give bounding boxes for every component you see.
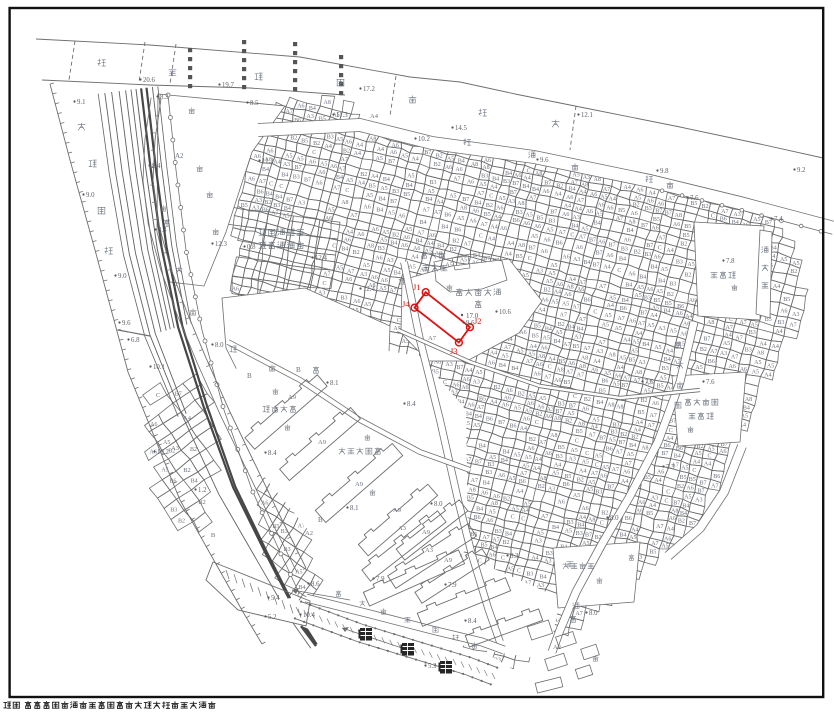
svg-text:B4: B4 bbox=[376, 208, 383, 214]
svg-text:A3: A3 bbox=[638, 360, 645, 366]
svg-text:A3: A3 bbox=[573, 257, 580, 263]
svg-text:A7: A7 bbox=[575, 611, 582, 617]
svg-text:C: C bbox=[479, 234, 483, 240]
svg-text:A6: A6 bbox=[646, 287, 653, 293]
svg-text:A5: A5 bbox=[631, 348, 638, 354]
svg-text:8.4: 8.4 bbox=[268, 450, 277, 457]
svg-text:A5: A5 bbox=[550, 263, 557, 269]
svg-text:A8: A8 bbox=[745, 397, 752, 403]
svg-text:A6: A6 bbox=[445, 165, 452, 171]
svg-text:B2: B2 bbox=[640, 398, 647, 404]
svg-text:A5: A5 bbox=[336, 266, 343, 272]
svg-text:J4: J4 bbox=[402, 299, 410, 309]
svg-text:A8: A8 bbox=[616, 404, 623, 410]
svg-text:B7: B7 bbox=[390, 199, 397, 205]
svg-text:A5: A5 bbox=[669, 329, 676, 335]
svg-text:J1: J1 bbox=[413, 282, 421, 292]
svg-text:B2: B2 bbox=[290, 135, 297, 141]
svg-text:A6: A6 bbox=[614, 374, 621, 380]
svg-text:A4: A4 bbox=[325, 144, 332, 150]
svg-text:8.0: 8.0 bbox=[610, 515, 619, 522]
svg-text:11.3: 11.3 bbox=[336, 112, 348, 119]
svg-text:A5: A5 bbox=[296, 157, 303, 163]
svg-text:A6: A6 bbox=[330, 164, 337, 170]
svg-text:A5: A5 bbox=[488, 509, 495, 515]
svg-text:A6: A6 bbox=[248, 177, 255, 183]
svg-text:B3: B3 bbox=[645, 206, 652, 212]
svg-text:A7: A7 bbox=[577, 198, 584, 204]
svg-text:B3: B3 bbox=[340, 296, 347, 302]
svg-text:B7: B7 bbox=[618, 440, 625, 446]
svg-text:B2: B2 bbox=[452, 238, 459, 244]
svg-text:A4: A4 bbox=[494, 214, 501, 220]
svg-text:A5: A5 bbox=[501, 353, 508, 359]
svg-text:C: C bbox=[573, 394, 577, 400]
svg-text:B4: B4 bbox=[552, 525, 559, 531]
svg-text:C: C bbox=[269, 181, 273, 187]
svg-text:A3: A3 bbox=[596, 349, 603, 355]
svg-text:C: C bbox=[548, 365, 552, 371]
svg-text:12.1: 12.1 bbox=[581, 112, 593, 119]
svg-text:B4: B4 bbox=[476, 507, 483, 513]
svg-text:A5: A5 bbox=[637, 285, 644, 291]
svg-text:B5: B5 bbox=[369, 183, 376, 189]
svg-text:A7: A7 bbox=[789, 322, 796, 328]
svg-text:7.6: 7.6 bbox=[690, 195, 699, 202]
svg-text:A5: A5 bbox=[681, 466, 688, 472]
svg-text:7.6: 7.6 bbox=[645, 379, 654, 386]
svg-text:A6: A6 bbox=[363, 204, 370, 210]
svg-text:A3: A3 bbox=[574, 335, 581, 341]
svg-text:A6: A6 bbox=[309, 159, 316, 165]
svg-text:10.6: 10.6 bbox=[499, 309, 511, 316]
svg-text:A5: A5 bbox=[362, 263, 369, 269]
svg-text:A6: A6 bbox=[686, 486, 693, 492]
svg-text:B7: B7 bbox=[304, 177, 311, 183]
svg-text:7.4: 7.4 bbox=[774, 216, 783, 223]
svg-text:A6: A6 bbox=[630, 211, 637, 217]
svg-text:B4: B4 bbox=[626, 228, 633, 234]
svg-text:12.3: 12.3 bbox=[215, 241, 227, 248]
svg-text:A4: A4 bbox=[616, 365, 623, 371]
svg-text:A5: A5 bbox=[754, 360, 761, 366]
svg-text:A2: A2 bbox=[553, 644, 561, 651]
svg-text:B4: B4 bbox=[341, 247, 348, 253]
svg-text:C: C bbox=[501, 556, 505, 562]
svg-text:A8: A8 bbox=[324, 100, 331, 106]
svg-text:A3: A3 bbox=[283, 162, 290, 168]
svg-text:B3: B3 bbox=[566, 520, 573, 526]
svg-text:B5: B5 bbox=[637, 410, 644, 416]
svg-text:A5: A5 bbox=[656, 289, 663, 295]
svg-text:8.4: 8.4 bbox=[158, 227, 167, 234]
svg-text:B4: B4 bbox=[674, 453, 681, 459]
svg-text:B3: B3 bbox=[170, 508, 177, 514]
svg-text:B2: B2 bbox=[601, 510, 608, 516]
svg-text:B3: B3 bbox=[481, 173, 488, 179]
svg-text:A6: A6 bbox=[533, 371, 540, 377]
svg-text:A5: A5 bbox=[380, 186, 387, 192]
svg-text:B2: B2 bbox=[538, 484, 545, 490]
svg-text:A9: A9 bbox=[422, 529, 430, 536]
svg-text:B6: B6 bbox=[584, 297, 591, 303]
svg-text:8.4: 8.4 bbox=[468, 618, 477, 625]
svg-text:A4: A4 bbox=[183, 415, 192, 422]
svg-text:B3: B3 bbox=[516, 210, 523, 216]
svg-text:J3: J3 bbox=[450, 346, 458, 356]
svg-text:A6: A6 bbox=[628, 272, 635, 278]
svg-text:A7: A7 bbox=[599, 284, 606, 290]
svg-text:B7: B7 bbox=[599, 435, 606, 441]
svg-text:B3: B3 bbox=[429, 180, 436, 186]
svg-text:B2: B2 bbox=[684, 273, 691, 279]
svg-text:A3: A3 bbox=[425, 547, 433, 554]
svg-text:A7: A7 bbox=[577, 372, 584, 378]
svg-text:A3: A3 bbox=[544, 559, 551, 565]
svg-text:B2: B2 bbox=[183, 467, 191, 474]
svg-text:A7: A7 bbox=[453, 176, 460, 182]
svg-text:A6: A6 bbox=[562, 212, 569, 218]
svg-text:A5: A5 bbox=[525, 213, 532, 219]
svg-text:8.0: 8.0 bbox=[589, 610, 598, 617]
svg-text:C: C bbox=[575, 439, 579, 445]
svg-text:A4: A4 bbox=[623, 338, 630, 344]
svg-text:B2: B2 bbox=[544, 288, 551, 294]
svg-text:B4: B4 bbox=[479, 443, 486, 449]
svg-text:A6: A6 bbox=[780, 309, 787, 315]
svg-text:B5: B5 bbox=[683, 233, 690, 239]
svg-text:B6: B6 bbox=[509, 423, 516, 429]
svg-text:B6: B6 bbox=[625, 516, 632, 522]
svg-text:8.4: 8.4 bbox=[152, 163, 161, 170]
svg-text:A3: A3 bbox=[298, 200, 305, 206]
svg-text:A3: A3 bbox=[658, 326, 665, 332]
svg-text:C: C bbox=[322, 281, 326, 287]
svg-text:B: B bbox=[296, 366, 301, 374]
svg-text:A4: A4 bbox=[579, 469, 586, 475]
svg-text:A3: A3 bbox=[583, 175, 590, 181]
svg-text:A4: A4 bbox=[621, 479, 628, 485]
svg-text:B5: B5 bbox=[657, 384, 664, 390]
svg-text:A5: A5 bbox=[427, 189, 434, 195]
svg-text:A4: A4 bbox=[358, 181, 365, 187]
svg-text:A3: A3 bbox=[360, 272, 367, 278]
svg-text:B4: B4 bbox=[540, 575, 547, 581]
svg-text:A4: A4 bbox=[516, 489, 523, 495]
svg-text:A4: A4 bbox=[490, 224, 497, 230]
svg-text:A6: A6 bbox=[488, 361, 495, 367]
svg-text:A5: A5 bbox=[524, 455, 531, 461]
svg-text:B3: B3 bbox=[676, 260, 683, 266]
svg-text:A4: A4 bbox=[648, 191, 655, 197]
svg-text:A4: A4 bbox=[554, 192, 561, 198]
svg-text:B5: B5 bbox=[689, 477, 696, 483]
svg-text:A6: A6 bbox=[636, 188, 643, 194]
svg-text:A6: A6 bbox=[297, 104, 304, 110]
svg-text:A9: A9 bbox=[444, 557, 452, 564]
svg-text:B4: B4 bbox=[571, 224, 578, 230]
svg-text:10.4: 10.4 bbox=[303, 612, 315, 619]
svg-text:B4: B4 bbox=[567, 324, 574, 330]
svg-text:A3: A3 bbox=[573, 215, 580, 221]
svg-text:A7: A7 bbox=[428, 335, 437, 342]
svg-text:B5: B5 bbox=[618, 208, 625, 214]
svg-text:B2: B2 bbox=[343, 148, 350, 154]
svg-text:A5: A5 bbox=[514, 406, 521, 412]
svg-text:A4: A4 bbox=[624, 185, 631, 191]
svg-text:9.1: 9.1 bbox=[77, 99, 86, 106]
svg-text:A8: A8 bbox=[594, 177, 601, 183]
svg-text:A5: A5 bbox=[592, 418, 599, 424]
svg-text:B3: B3 bbox=[485, 470, 492, 476]
svg-text:B2: B2 bbox=[667, 292, 674, 298]
svg-text:A7: A7 bbox=[563, 342, 570, 348]
svg-text:B7: B7 bbox=[462, 197, 469, 203]
svg-text:A4: A4 bbox=[520, 426, 527, 432]
svg-text:B4: B4 bbox=[511, 366, 518, 372]
svg-text:A5: A5 bbox=[546, 279, 553, 285]
svg-text:A7: A7 bbox=[566, 370, 573, 376]
svg-text:A4: A4 bbox=[411, 254, 418, 260]
svg-text:A6: A6 bbox=[566, 195, 573, 201]
svg-text:B6: B6 bbox=[454, 228, 461, 234]
svg-text:A3: A3 bbox=[445, 362, 452, 368]
svg-text:B4: B4 bbox=[441, 225, 448, 231]
svg-text:B7: B7 bbox=[673, 500, 680, 506]
svg-text:C: C bbox=[600, 521, 604, 527]
svg-text:B2: B2 bbox=[360, 172, 367, 178]
svg-text:C: C bbox=[156, 392, 160, 399]
svg-text:B2: B2 bbox=[190, 447, 197, 453]
svg-text:B4: B4 bbox=[619, 257, 626, 263]
svg-text:A4: A4 bbox=[666, 348, 673, 354]
svg-text:B2: B2 bbox=[677, 484, 684, 490]
svg-text:B2: B2 bbox=[678, 519, 685, 525]
svg-text:A6: A6 bbox=[540, 346, 547, 352]
svg-text:A4: A4 bbox=[371, 174, 378, 180]
svg-text:B6: B6 bbox=[606, 446, 613, 452]
svg-text:B: B bbox=[247, 372, 252, 380]
svg-text:A9: A9 bbox=[318, 439, 326, 446]
svg-text:A7: A7 bbox=[731, 355, 738, 361]
svg-text:A6: A6 bbox=[581, 506, 588, 512]
svg-text:B4: B4 bbox=[298, 585, 305, 591]
svg-text:B5: B5 bbox=[665, 301, 672, 307]
svg-text:A7: A7 bbox=[579, 317, 586, 323]
svg-text:5.2: 5.2 bbox=[268, 614, 277, 621]
svg-text:A6: A6 bbox=[689, 298, 696, 304]
svg-text:A8: A8 bbox=[341, 200, 348, 206]
svg-text:A6: A6 bbox=[455, 167, 462, 173]
svg-text:B3: B3 bbox=[669, 282, 676, 288]
svg-text:B3: B3 bbox=[621, 247, 628, 253]
svg-text:C: C bbox=[535, 420, 539, 426]
svg-text:B7: B7 bbox=[512, 181, 519, 187]
svg-text:B4: B4 bbox=[594, 221, 601, 227]
svg-text:B3: B3 bbox=[745, 348, 752, 354]
svg-text:B5: B5 bbox=[516, 254, 523, 260]
svg-text:A6: A6 bbox=[540, 249, 547, 255]
svg-text:A6: A6 bbox=[150, 450, 157, 456]
svg-text:C: C bbox=[489, 193, 493, 199]
svg-text:B3: B3 bbox=[777, 320, 784, 326]
svg-text:A4: A4 bbox=[609, 197, 616, 203]
svg-text:A5: A5 bbox=[753, 217, 760, 223]
svg-text:A4: A4 bbox=[356, 143, 363, 149]
svg-text:B4: B4 bbox=[475, 414, 482, 420]
svg-text:A6: A6 bbox=[576, 245, 583, 251]
svg-text:B4: B4 bbox=[642, 342, 649, 348]
svg-text:B2: B2 bbox=[434, 162, 441, 168]
svg-text:A5: A5 bbox=[567, 411, 574, 417]
svg-text:B2: B2 bbox=[392, 232, 399, 238]
svg-text:A4: A4 bbox=[650, 313, 657, 319]
svg-text:B3: B3 bbox=[526, 571, 533, 577]
svg-text:A7: A7 bbox=[579, 235, 586, 241]
svg-text:B2: B2 bbox=[353, 250, 360, 256]
svg-text:A4: A4 bbox=[666, 248, 673, 254]
svg-text:A5: A5 bbox=[573, 493, 580, 499]
svg-text:A5: A5 bbox=[695, 365, 702, 371]
svg-text:B4: B4 bbox=[532, 187, 539, 193]
svg-text:A8: A8 bbox=[607, 402, 614, 408]
svg-text:A6: A6 bbox=[380, 278, 387, 284]
svg-text:C: C bbox=[517, 569, 521, 575]
svg-text:A5: A5 bbox=[684, 495, 691, 501]
svg-text:A7: A7 bbox=[338, 166, 345, 172]
svg-text:A6: A6 bbox=[469, 219, 476, 225]
svg-text:A5: A5 bbox=[615, 326, 622, 332]
svg-text:A7: A7 bbox=[417, 230, 424, 236]
svg-text:C: C bbox=[669, 428, 673, 434]
svg-text:B4: B4 bbox=[553, 339, 560, 345]
svg-text:B4: B4 bbox=[522, 184, 529, 190]
svg-text:C: C bbox=[585, 451, 589, 457]
svg-text:A7: A7 bbox=[350, 213, 357, 219]
svg-text:C: C bbox=[312, 150, 316, 156]
svg-text:B3: B3 bbox=[378, 246, 385, 252]
svg-text:7.9: 7.9 bbox=[448, 582, 457, 589]
svg-text:A6: A6 bbox=[318, 170, 325, 176]
svg-text:B4: B4 bbox=[499, 363, 506, 369]
svg-text:B5: B5 bbox=[653, 298, 660, 304]
svg-text:A6: A6 bbox=[390, 150, 397, 156]
svg-text:A6: A6 bbox=[606, 253, 613, 259]
svg-text:17.0: 17.0 bbox=[466, 312, 479, 320]
svg-text:A5: A5 bbox=[595, 454, 602, 460]
svg-text:B2: B2 bbox=[790, 269, 797, 275]
svg-text:A8: A8 bbox=[517, 201, 524, 207]
svg-text:A4: A4 bbox=[593, 359, 600, 365]
svg-text:B4: B4 bbox=[629, 443, 636, 449]
svg-text:A6: A6 bbox=[232, 286, 239, 292]
svg-text:B4: B4 bbox=[262, 167, 269, 173]
svg-text:B7: B7 bbox=[286, 197, 293, 203]
svg-text:7.3: 7.3 bbox=[666, 464, 675, 471]
svg-text:A6: A6 bbox=[562, 254, 569, 260]
svg-text:A6: A6 bbox=[624, 238, 631, 244]
svg-text:17.2: 17.2 bbox=[363, 86, 375, 93]
svg-text:B2: B2 bbox=[680, 242, 687, 248]
svg-text:B2: B2 bbox=[634, 249, 641, 255]
svg-text:8.1: 8.1 bbox=[350, 505, 359, 512]
svg-text:A5: A5 bbox=[661, 267, 668, 273]
svg-text:12.4: 12.4 bbox=[363, 286, 375, 293]
svg-text:B3: B3 bbox=[495, 529, 502, 535]
svg-text:A8: A8 bbox=[635, 370, 642, 376]
svg-text:C: C bbox=[617, 268, 621, 274]
svg-text:8.6: 8.6 bbox=[311, 581, 320, 588]
svg-text:A4: A4 bbox=[488, 236, 495, 242]
svg-text:1.2: 1.2 bbox=[198, 487, 207, 494]
svg-text:6.8: 6.8 bbox=[131, 337, 140, 344]
svg-text:A4: A4 bbox=[759, 342, 766, 348]
svg-text:B4: B4 bbox=[275, 195, 282, 201]
svg-text:A4: A4 bbox=[504, 252, 511, 258]
svg-text:B4: B4 bbox=[625, 282, 632, 288]
svg-text:B4: B4 bbox=[281, 172, 288, 178]
svg-text:C: C bbox=[692, 468, 696, 474]
svg-text:A5: A5 bbox=[346, 178, 353, 184]
svg-text:A5: A5 bbox=[659, 376, 666, 382]
svg-text:A7: A7 bbox=[422, 208, 429, 214]
svg-text:A6: A6 bbox=[429, 233, 436, 239]
svg-text:9.0: 9.0 bbox=[86, 192, 95, 199]
svg-text:B5: B5 bbox=[403, 192, 410, 198]
svg-text:A7: A7 bbox=[612, 467, 619, 473]
svg-text:C: C bbox=[345, 188, 349, 194]
svg-text:A8: A8 bbox=[757, 351, 764, 357]
svg-text:A6: A6 bbox=[353, 299, 360, 305]
svg-text:A7: A7 bbox=[560, 312, 567, 318]
svg-text:A6: A6 bbox=[345, 277, 352, 283]
svg-text:8.1: 8.1 bbox=[330, 380, 339, 387]
svg-text:A6: A6 bbox=[523, 417, 530, 423]
svg-text:A5: A5 bbox=[588, 480, 595, 486]
svg-text:A3: A3 bbox=[720, 351, 727, 357]
svg-text:9.6: 9.6 bbox=[466, 320, 475, 327]
svg-text:A5: A5 bbox=[327, 207, 334, 213]
svg-text:B2: B2 bbox=[502, 540, 509, 546]
svg-text:B5: B5 bbox=[649, 550, 656, 556]
svg-text:A6: A6 bbox=[496, 206, 503, 212]
svg-text:A7: A7 bbox=[464, 241, 471, 247]
svg-text:A6: A6 bbox=[371, 275, 378, 281]
svg-text:A4: A4 bbox=[635, 331, 642, 337]
svg-text:A6: A6 bbox=[542, 189, 549, 195]
svg-text:A5: A5 bbox=[562, 302, 569, 308]
svg-text:A4: A4 bbox=[538, 307, 545, 313]
svg-text:B4: B4 bbox=[639, 275, 646, 281]
svg-text:B: B bbox=[211, 532, 216, 539]
svg-text:A7: A7 bbox=[615, 450, 622, 456]
svg-text:A6: A6 bbox=[543, 237, 550, 243]
svg-text:B6: B6 bbox=[486, 417, 493, 423]
svg-text:A5: A5 bbox=[163, 440, 170, 446]
svg-text:A5: A5 bbox=[752, 369, 759, 375]
svg-text:A6: A6 bbox=[541, 297, 548, 303]
svg-text:A7: A7 bbox=[477, 405, 484, 411]
svg-text:C: C bbox=[666, 490, 670, 496]
svg-text:A7: A7 bbox=[259, 179, 266, 185]
svg-text:B3: B3 bbox=[644, 295, 651, 301]
svg-text:A8: A8 bbox=[581, 356, 588, 362]
svg-text:B5: B5 bbox=[783, 297, 790, 303]
svg-text:A6: A6 bbox=[597, 203, 604, 209]
svg-text:A6: A6 bbox=[527, 446, 534, 452]
svg-text:A6: A6 bbox=[357, 232, 364, 238]
svg-text:A3: A3 bbox=[307, 114, 314, 120]
